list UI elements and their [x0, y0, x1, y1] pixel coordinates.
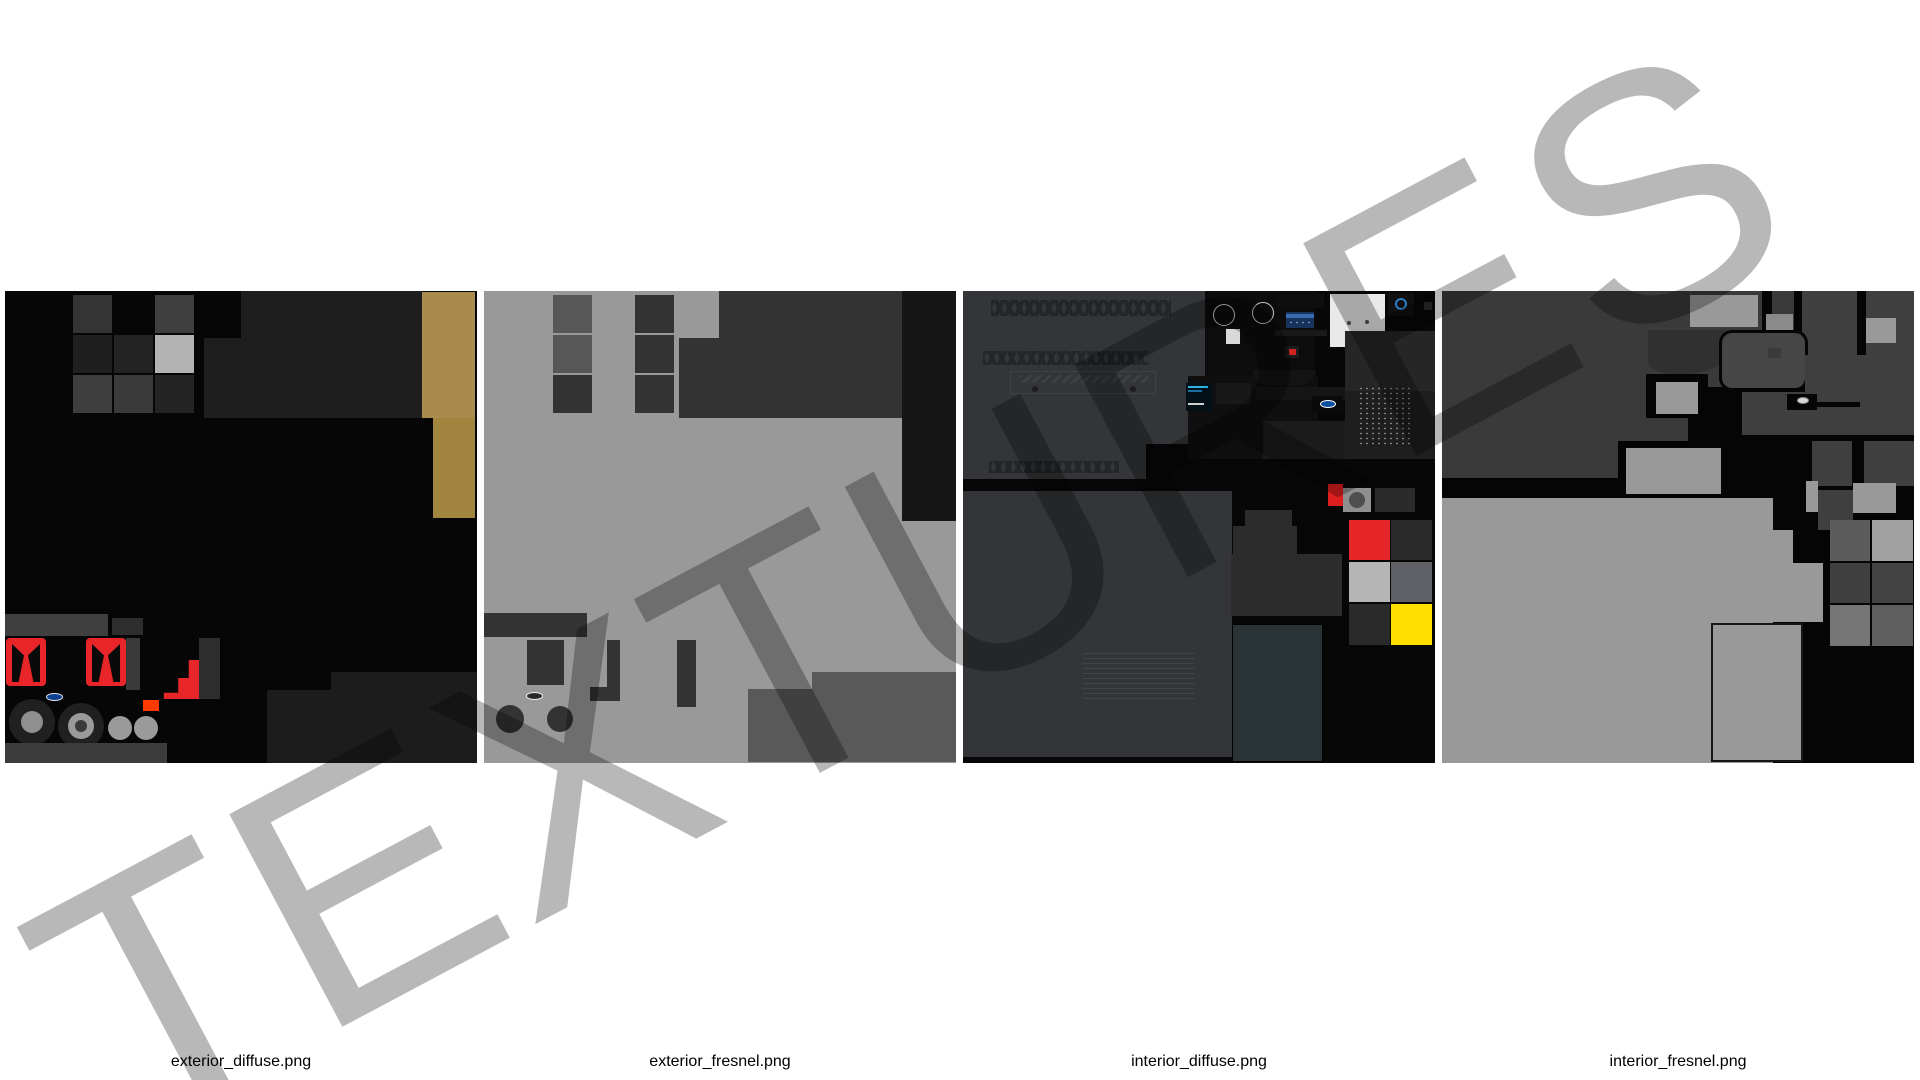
swatch [155, 375, 194, 413]
knob [1349, 492, 1365, 508]
light-patch [1656, 382, 1698, 414]
swatch [73, 295, 112, 333]
swatch [1830, 605, 1870, 646]
wood-strip [422, 292, 475, 418]
block [527, 640, 564, 685]
ford-chip [1312, 396, 1343, 412]
panel [204, 338, 422, 418]
ribbed-lines [1083, 653, 1195, 699]
bar [484, 613, 587, 637]
trim-dot [1130, 386, 1136, 392]
panel [719, 291, 902, 338]
swatch [1872, 605, 1913, 646]
red-strip [1328, 484, 1343, 506]
light-patch [1766, 314, 1793, 330]
dash-gray [963, 491, 1232, 757]
trim-frame [1010, 371, 1156, 394]
panel [1805, 355, 1914, 435]
swatch [1830, 520, 1870, 561]
light-patch [1690, 295, 1758, 327]
texture-tile-exterior-diffuse [5, 291, 477, 763]
small-wheel [108, 716, 132, 740]
ford-badge [526, 692, 543, 700]
diamond-plate [5, 743, 167, 763]
swatch [553, 335, 592, 373]
swatch [73, 375, 112, 413]
block [199, 638, 220, 699]
marker-orange [143, 700, 159, 711]
texture-tile-interior-diffuse [963, 291, 1435, 763]
bar [590, 687, 620, 701]
light-patch [1853, 483, 1896, 513]
step-panel [748, 689, 814, 762]
screen-icons [1288, 320, 1312, 326]
ford-badge [46, 693, 63, 701]
stitch-dots [1358, 386, 1413, 446]
panel [1345, 331, 1435, 391]
console-panel [1722, 333, 1805, 388]
swatch [1391, 562, 1432, 602]
swatch [1830, 563, 1870, 603]
swatch [1872, 563, 1913, 603]
swatch-yellow [1391, 604, 1432, 645]
knob-plate [1343, 488, 1371, 512]
icon-strip [1278, 293, 1324, 308]
button-row [1275, 330, 1327, 336]
taillight-inset [92, 644, 104, 682]
swatch [114, 375, 153, 413]
screen-bar [1286, 314, 1314, 318]
tiny-icon [1424, 302, 1432, 310]
swatch [1391, 520, 1432, 560]
black-band [1442, 478, 1626, 498]
wood-strip [433, 418, 475, 518]
panel [1864, 441, 1914, 486]
trim-hatch [991, 300, 1171, 316]
wheel [496, 705, 524, 733]
texture-filename-label: exterior_diffuse.png [171, 1053, 311, 1071]
panel [267, 690, 331, 763]
texture-filename-label: interior_diffuse.png [1131, 1053, 1267, 1071]
inset [1768, 348, 1781, 358]
vent-dot [1347, 321, 1351, 325]
trim-stripes [1019, 375, 1149, 383]
column [126, 638, 140, 690]
gap [1857, 291, 1866, 355]
console-curve [1253, 370, 1316, 385]
bar [5, 614, 108, 636]
swatch [635, 335, 674, 373]
swatch [73, 335, 112, 373]
trim-dot [1032, 386, 1038, 392]
hub [21, 711, 43, 733]
texture-tile-interior-fresnel [1442, 291, 1914, 763]
bar [677, 640, 696, 707]
bar [112, 618, 143, 635]
vent-dot [1365, 320, 1369, 324]
texture-sheet-canvas: exterior_diffuse.png exterior_fresnel.pn… [0, 0, 1920, 1080]
ford-badge [1320, 400, 1336, 408]
black-column [902, 291, 956, 521]
taillight [6, 638, 46, 686]
swatch-red [1349, 520, 1390, 560]
floor-light-step [1773, 530, 1793, 563]
step-panel [812, 672, 956, 762]
texture-filename-label: interior_fresnel.png [1610, 1053, 1747, 1071]
bar [607, 640, 620, 688]
ribbed-panel [1231, 554, 1342, 616]
panel [679, 338, 902, 418]
gauge [1252, 302, 1274, 324]
trim-hatch [989, 461, 1119, 473]
taillight [86, 638, 126, 686]
nav-screen [1286, 312, 1314, 328]
taillight-inset [28, 644, 40, 682]
blue-ring [1395, 298, 1407, 310]
light-patch [1626, 448, 1721, 494]
gauge-panel [1388, 293, 1414, 316]
swatch [635, 375, 674, 413]
swatch-light [1872, 520, 1913, 561]
switch-panel [1216, 383, 1251, 404]
light-patch [1226, 329, 1240, 344]
swatch [155, 335, 194, 373]
teal-ribbed-panel [1232, 624, 1323, 762]
ribbed-panel [1233, 526, 1297, 554]
light-sliver [1806, 481, 1818, 512]
hub-center [75, 720, 87, 732]
hazard-chip [1285, 346, 1299, 358]
light-patch [1866, 318, 1896, 343]
wheel [547, 706, 573, 732]
panel [241, 291, 422, 338]
taillight-inset [12, 644, 24, 682]
screen-line [1188, 403, 1204, 405]
panel [331, 672, 477, 763]
trim-hatch [983, 351, 1148, 365]
panel [1263, 421, 1345, 459]
small-wheel [134, 716, 158, 740]
panel [1812, 441, 1852, 486]
screen-line [1188, 390, 1202, 392]
ribbed-panel [1245, 510, 1292, 526]
swatch [553, 375, 592, 413]
swatch [1349, 604, 1390, 645]
hazard-red [1289, 349, 1296, 355]
ford-badge [1797, 397, 1809, 404]
screen-line [1188, 386, 1208, 388]
floor-light-step [1773, 563, 1823, 622]
swatch [1375, 488, 1415, 512]
swatch [553, 295, 592, 333]
gauge [1213, 304, 1235, 326]
swatch [155, 295, 194, 333]
texture-tile-exterior-fresnel [484, 291, 956, 763]
swatch-light [1349, 562, 1390, 602]
texture-filename-label: exterior_fresnel.png [649, 1053, 790, 1071]
taillight-inset [108, 644, 120, 682]
bordered-panel [1711, 623, 1803, 762]
swatch [114, 335, 153, 373]
cluster-screen [1186, 383, 1212, 411]
swatch [635, 295, 674, 333]
